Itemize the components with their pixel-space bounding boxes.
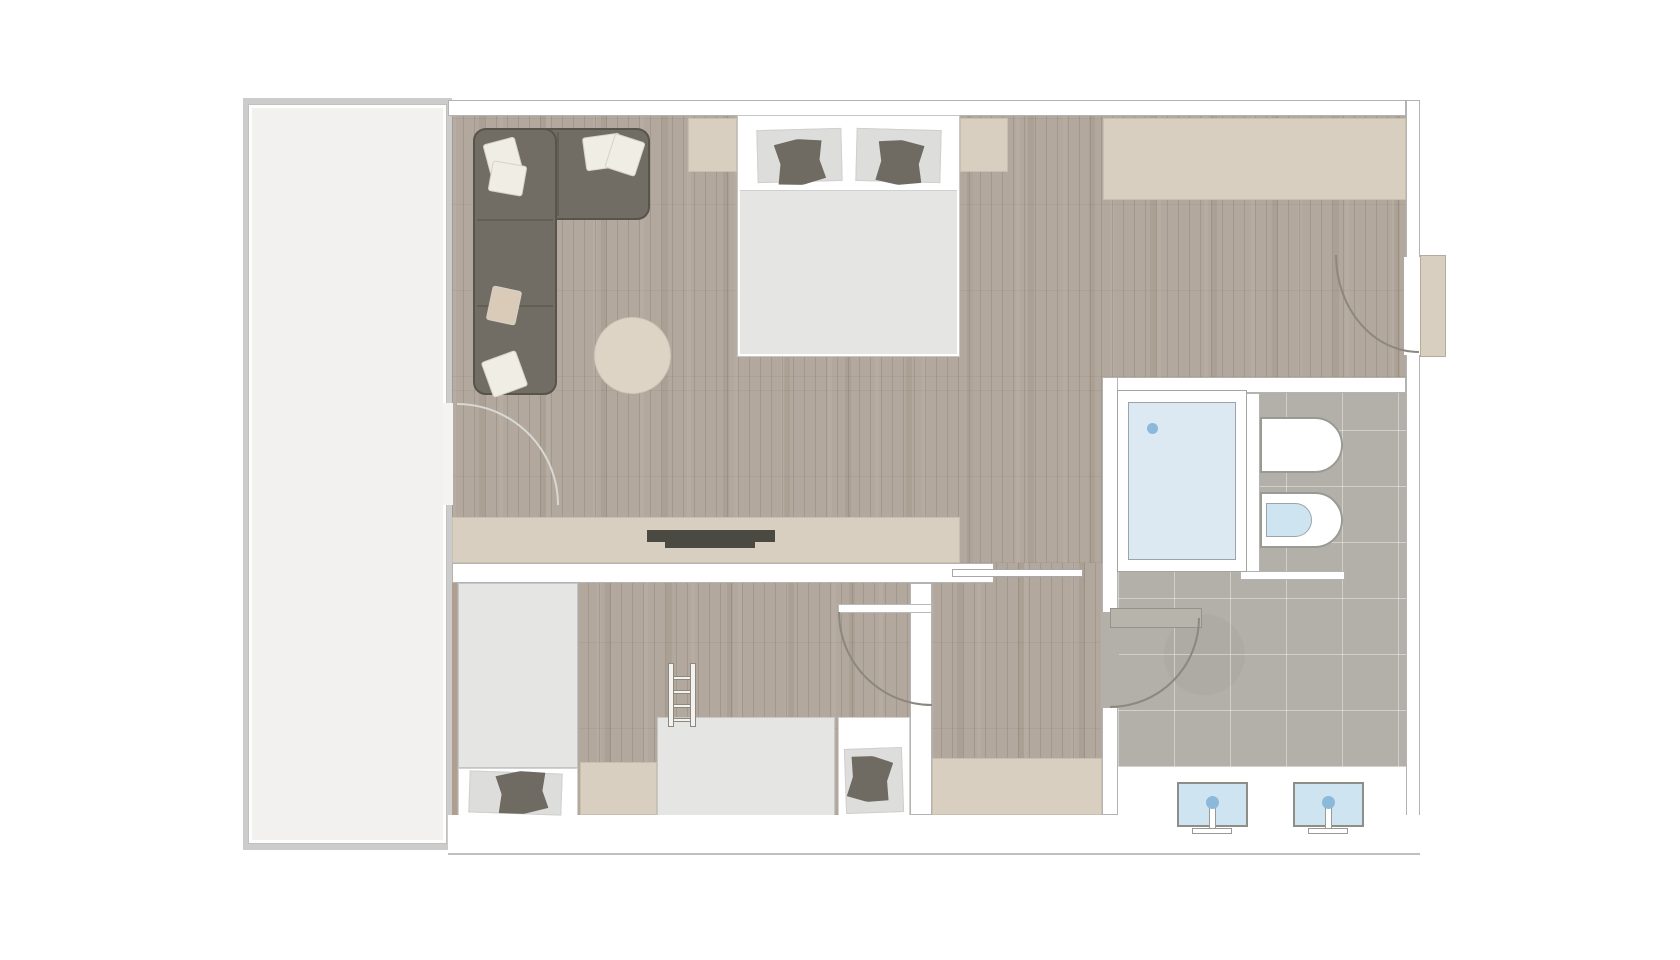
- right-wall: [1406, 100, 1420, 855]
- bathroom-left-wall: [1102, 377, 1118, 815]
- bathtub-basin: [1128, 402, 1236, 560]
- balcony: [243, 98, 452, 850]
- bed-cushion-right: [875, 138, 925, 187]
- sliding-door: [952, 569, 1083, 577]
- bed-cushion-left: [773, 136, 826, 188]
- bottom-wall: [448, 815, 1420, 855]
- faucet-left-bar: [1192, 828, 1232, 834]
- kids-bed-left-duvet: [458, 583, 578, 768]
- corridor-wall: [452, 563, 993, 583]
- bunk-ladder-rung-3: [673, 704, 691, 708]
- nightstand-right: [960, 118, 1008, 172]
- ottoman: [594, 317, 671, 394]
- bunk-ladder-rung-1: [673, 676, 691, 680]
- sofa-seam-1: [557, 132, 559, 216]
- balcony-floor: [252, 108, 443, 840]
- sofa-seam-2: [477, 219, 553, 221]
- tv: [647, 530, 775, 542]
- bunk-bed-duvet: [657, 717, 835, 815]
- bunk-ladder-rung-4: [673, 718, 691, 722]
- wardrobe: [1103, 118, 1406, 200]
- tub-foot-ledge: [1240, 571, 1345, 580]
- top-wall: [448, 100, 1406, 116]
- balcony-door-opening: [443, 403, 453, 505]
- bunk-ladder-rung-2: [673, 690, 691, 694]
- faucet-right-bar: [1308, 828, 1348, 834]
- tub-drain-icon: [1147, 423, 1158, 434]
- nightstand-left: [688, 118, 737, 172]
- kids-closet-block: [580, 762, 657, 815]
- tv-base: [665, 542, 755, 548]
- floor-plan: [0, 0, 1680, 960]
- entrance-door-leaf: [1420, 255, 1446, 357]
- toilet: [1260, 417, 1343, 473]
- kids-room-left-wall: [452, 583, 457, 815]
- kids-bed-left-pillow: [495, 769, 549, 816]
- hall-closet: [932, 758, 1102, 815]
- faucet-left-icon: [1206, 796, 1219, 809]
- bidet-bowl: [1266, 503, 1312, 537]
- bed-duvet: [740, 190, 957, 354]
- sofa-pillow-2: [488, 160, 528, 197]
- faucet-right-icon: [1322, 796, 1335, 809]
- kids-bed-right-pillow: [846, 754, 893, 805]
